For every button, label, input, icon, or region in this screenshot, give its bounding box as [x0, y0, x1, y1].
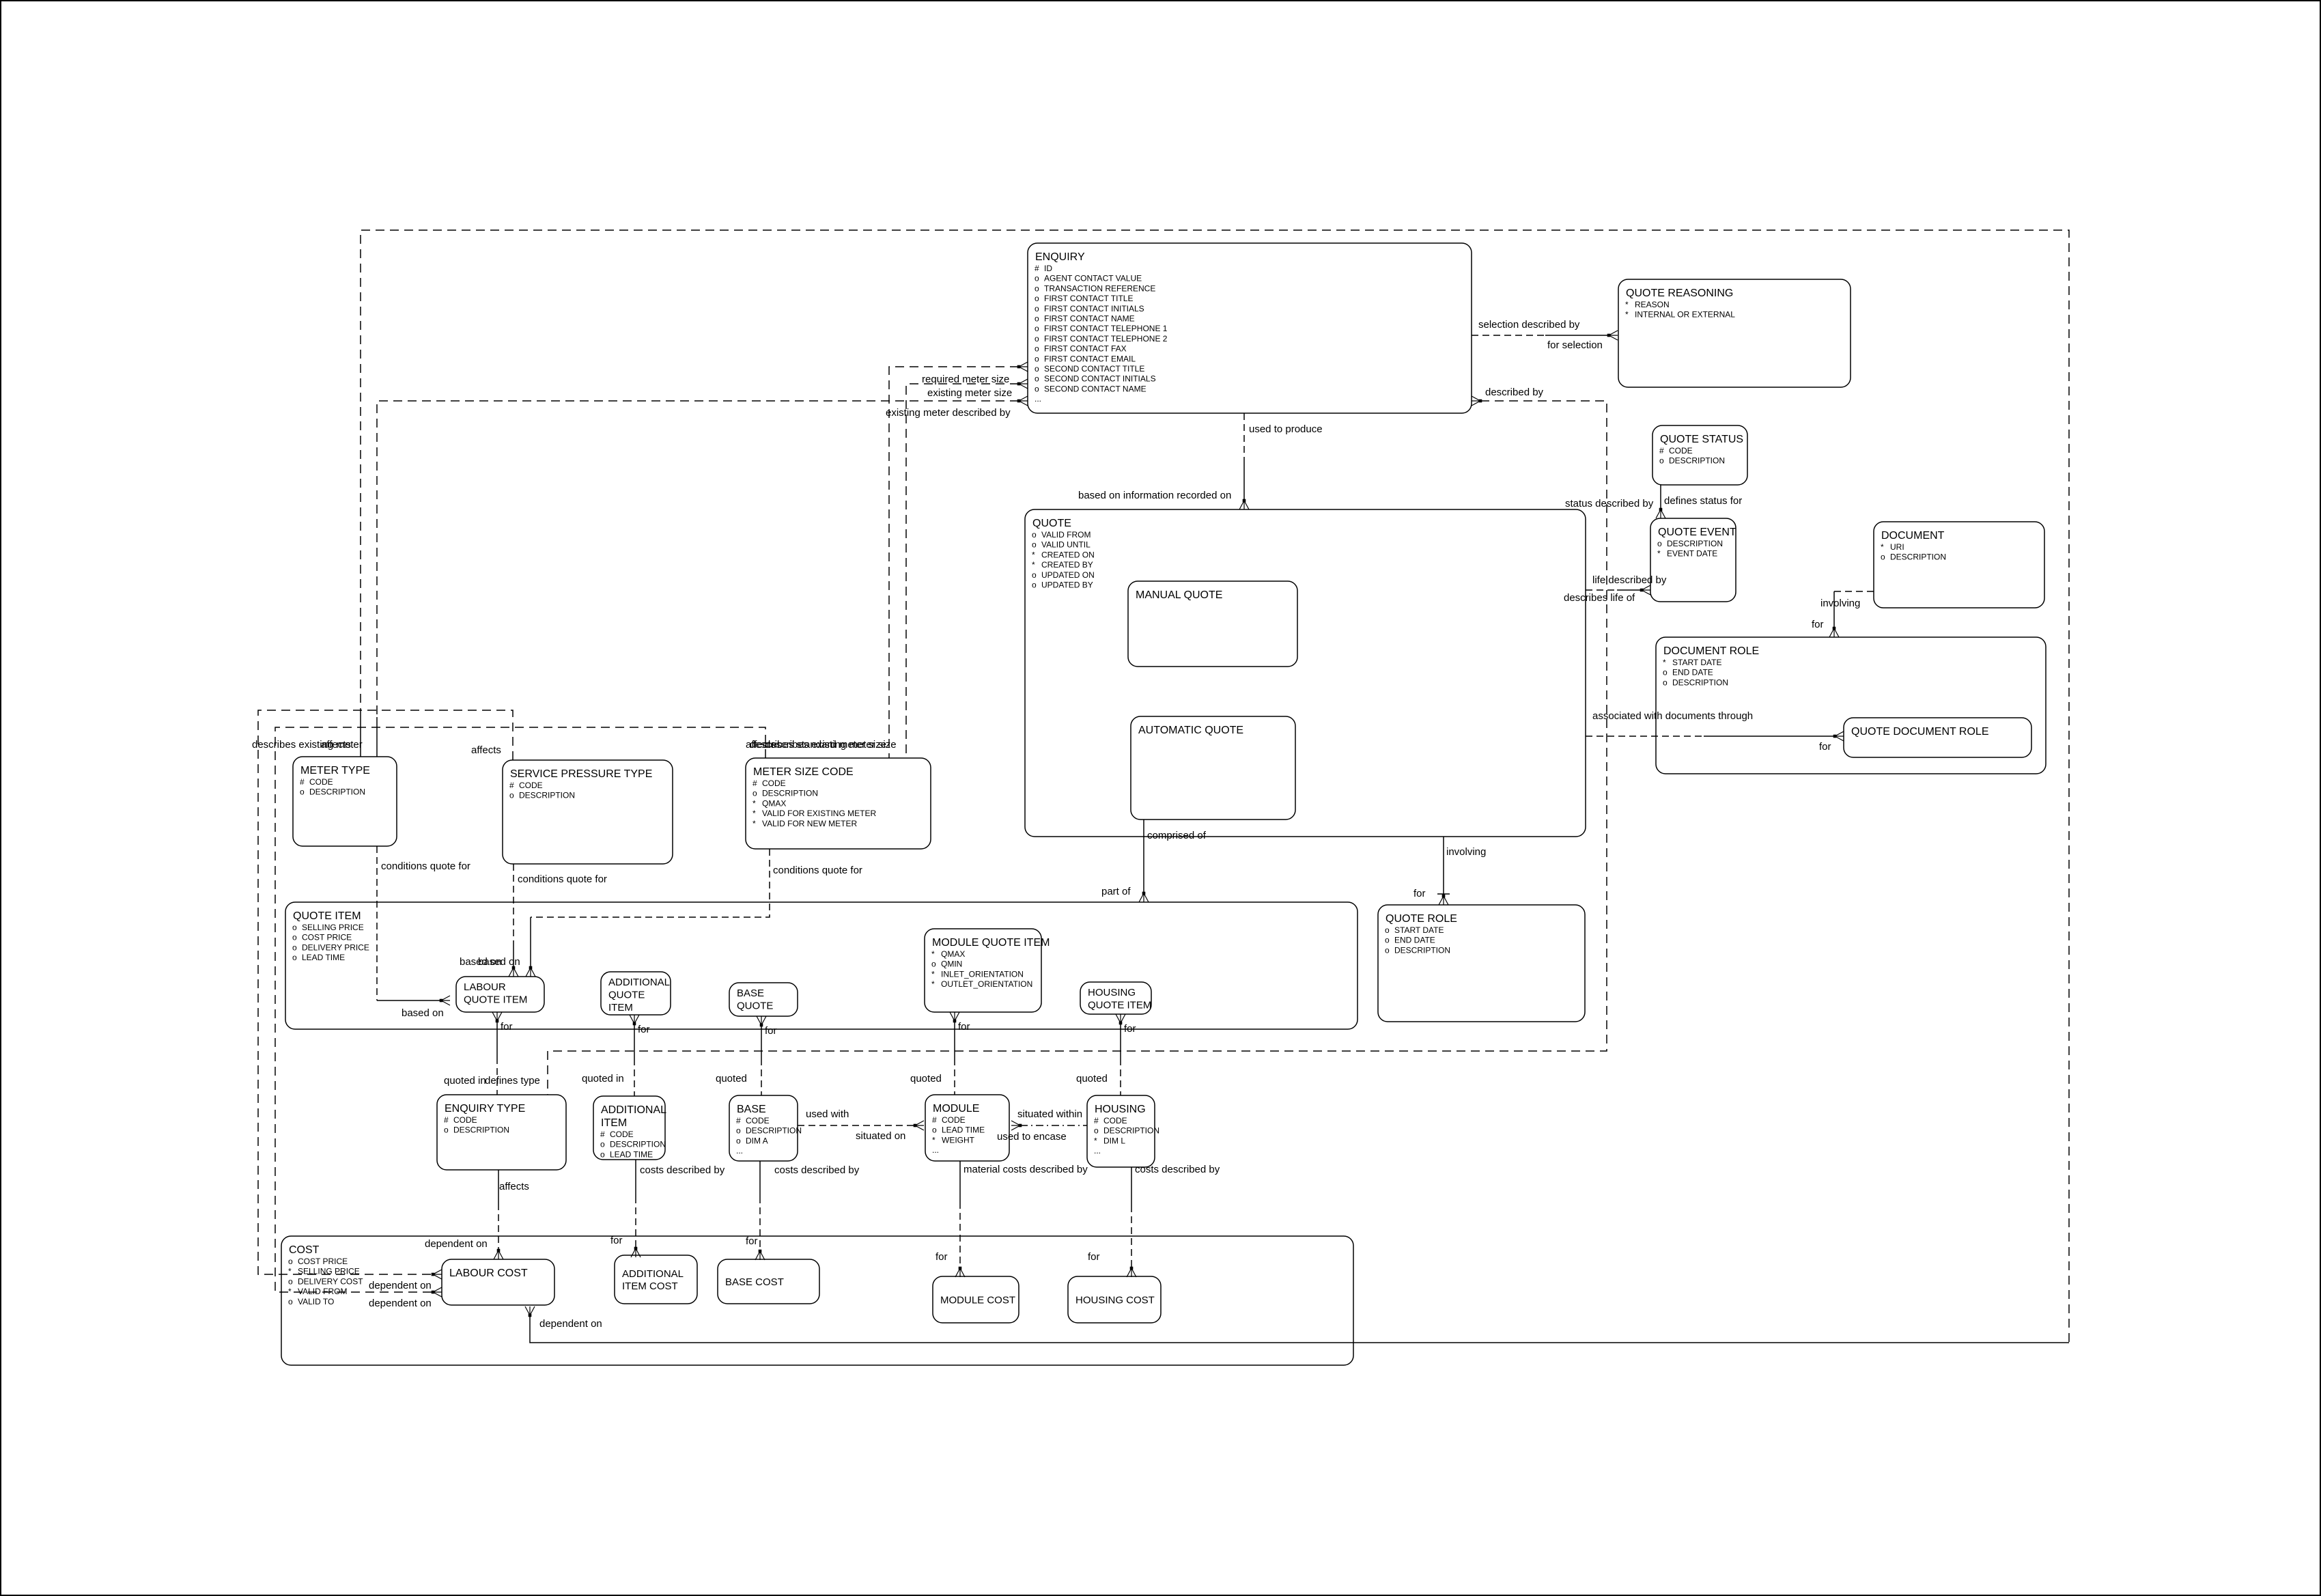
svg-text:DESCRIPTION: DESCRIPTION [762, 789, 818, 798]
svg-text:AGENT CONTACT VALUE: AGENT CONTACT VALUE [1044, 274, 1142, 283]
svg-text:ID: ID [1044, 264, 1052, 273]
svg-text:based on: based on [402, 1007, 444, 1019]
svg-text:*: * [1657, 549, 1661, 559]
svg-text:FIRST CONTACT TELEPHONE 2: FIRST CONTACT TELEPHONE 2 [1044, 334, 1168, 344]
svg-text:o: o [1035, 364, 1039, 374]
svg-text:o: o [1032, 570, 1037, 580]
svg-text:o: o [1035, 384, 1039, 393]
svg-text:TRANSACTION REFERENCE: TRANSACTION REFERENCE [1044, 283, 1155, 293]
svg-text:...: ... [736, 1146, 743, 1156]
svg-text:describes existing meter size: describes existing meter size [765, 739, 897, 751]
svg-text:SECOND CONTACT TITLE: SECOND CONTACT TITLE [1044, 364, 1144, 374]
svg-text:DIM L: DIM L [1103, 1136, 1125, 1145]
svg-text:*: * [1032, 560, 1035, 570]
svg-text:DOCUMENT: DOCUMENT [1881, 530, 1945, 542]
svg-text:CREATED BY: CREATED BY [1041, 560, 1093, 570]
svg-text:involving: involving [1446, 846, 1486, 858]
svg-text:*: * [1625, 310, 1629, 320]
svg-text:QMAX: QMAX [941, 949, 965, 959]
svg-text:#: # [300, 777, 305, 787]
svg-text:for: for [638, 1024, 650, 1035]
svg-text:*: * [1625, 300, 1629, 309]
svg-text:SECOND CONTACT INITIALS: SECOND CONTACT INITIALS [1044, 374, 1156, 384]
svg-text:LEAD TIME: LEAD TIME [610, 1149, 653, 1159]
svg-text:o: o [1035, 324, 1039, 333]
svg-text:o: o [1035, 274, 1039, 283]
svg-text:ADDITIONAL: ADDITIONAL [601, 1104, 666, 1116]
svg-text:used to produce: used to produce [1249, 423, 1323, 435]
svg-text:*: * [932, 1135, 936, 1145]
svg-text:CODE: CODE [746, 1116, 770, 1125]
svg-text:LEAD TIME: LEAD TIME [942, 1125, 985, 1135]
svg-text:o: o [1385, 945, 1390, 955]
svg-text:o: o [300, 787, 305, 797]
svg-text:o: o [1032, 580, 1037, 590]
svg-text:used to encase: used to encase [997, 1131, 1067, 1143]
svg-text:CREATED ON: CREATED ON [1041, 550, 1095, 559]
svg-text:dependent on: dependent on [425, 1238, 488, 1250]
svg-text:QUOTE ITEM: QUOTE ITEM [1088, 1000, 1151, 1011]
svg-text:conditions quote for: conditions quote for [773, 865, 862, 876]
svg-text:involving: involving [1820, 598, 1860, 609]
svg-text:FIRST CONTACT TELEPHONE 1: FIRST CONTACT TELEPHONE 1 [1044, 324, 1168, 333]
svg-text:for selection: for selection [1547, 339, 1603, 351]
svg-text:END DATE: END DATE [1672, 668, 1713, 677]
svg-text:o: o [288, 1276, 293, 1286]
svg-text:affects: affects [499, 1181, 529, 1192]
svg-text:o: o [509, 791, 514, 800]
svg-text:VALID FOR EXISTING METER: VALID FOR EXISTING METER [762, 809, 876, 818]
svg-text:o: o [1035, 374, 1039, 384]
svg-text:dependent on: dependent on [369, 1280, 432, 1291]
svg-text:describes life of: describes life of [1564, 592, 1635, 604]
svg-text:DESCRIPTION: DESCRIPTION [1394, 945, 1450, 955]
svg-text:dependent on: dependent on [539, 1318, 602, 1330]
svg-text:o: o [292, 942, 297, 952]
svg-text:#: # [600, 1130, 605, 1139]
svg-text:existing meter size: existing meter size [927, 387, 1012, 399]
svg-text:CODE: CODE [309, 777, 333, 787]
svg-text:BASE COST: BASE COST [725, 1276, 784, 1288]
svg-text:for: for [610, 1235, 623, 1246]
svg-text:o: o [1657, 539, 1662, 548]
svg-text:MODULE COST: MODULE COST [940, 1295, 1015, 1306]
svg-text:*: * [752, 819, 756, 828]
svg-text:o: o [288, 1297, 293, 1306]
svg-text:CODE: CODE [942, 1115, 966, 1125]
svg-text:affects: affects [471, 744, 501, 756]
svg-text:CODE: CODE [1103, 1116, 1127, 1125]
svg-text:used with: used with [806, 1108, 849, 1120]
svg-text:FIRST CONTACT NAME: FIRST CONTACT NAME [1044, 314, 1135, 324]
svg-text:FIRST CONTACT FAX: FIRST CONTACT FAX [1044, 344, 1127, 354]
svg-text:WEIGHT: WEIGHT [942, 1135, 975, 1145]
svg-text:UPDATED BY: UPDATED BY [1041, 580, 1093, 590]
svg-text:CODE: CODE [762, 779, 786, 788]
svg-text:costs described by: costs described by [1135, 1164, 1220, 1175]
svg-text:for: for [765, 1025, 777, 1037]
svg-text:COST PRICE: COST PRICE [298, 1257, 348, 1266]
svg-text:situated within: situated within [1017, 1108, 1082, 1120]
svg-text:comprised of: comprised of [1147, 830, 1207, 841]
svg-text:DESCRIPTION: DESCRIPTION [1890, 552, 1946, 562]
svg-text:o: o [736, 1136, 741, 1145]
svg-text:status described by: status described by [1565, 498, 1654, 509]
svg-text:HOUSING: HOUSING [1088, 987, 1136, 998]
svg-text:VALID UNTIL: VALID UNTIL [1041, 540, 1091, 550]
svg-text:DESCRIPTION: DESCRIPTION [453, 1125, 509, 1135]
svg-text:ADDITIONAL: ADDITIONAL [608, 977, 670, 988]
svg-text:*: * [752, 809, 756, 818]
svg-text:EVENT DATE: EVENT DATE [1667, 549, 1717, 559]
svg-text:ITEM: ITEM [608, 1002, 633, 1013]
svg-text:life described by: life described by [1592, 574, 1667, 586]
svg-text:METER TYPE: METER TYPE [300, 765, 370, 776]
svg-text:quoted in: quoted in [444, 1075, 486, 1087]
svg-text:BASE: BASE [737, 988, 764, 999]
svg-text:HOUSING: HOUSING [1095, 1104, 1146, 1115]
svg-text:ENQUIRY: ENQUIRY [1035, 251, 1085, 263]
svg-text:defines type: defines type [485, 1075, 540, 1087]
svg-text:quoted: quoted [716, 1073, 747, 1084]
svg-text:DESCRIPTION: DESCRIPTION [1667, 539, 1723, 548]
svg-text:AUTOMATIC QUOTE: AUTOMATIC QUOTE [1138, 725, 1243, 736]
svg-text:DESCRIPTION: DESCRIPTION [746, 1126, 802, 1136]
svg-text:DOCUMENT ROLE: DOCUMENT ROLE [1663, 645, 1759, 657]
svg-text:CODE: CODE [610, 1130, 634, 1139]
svg-text:QUOTE ITEM: QUOTE ITEM [464, 994, 527, 1006]
svg-text:FIRST CONTACT INITIALS: FIRST CONTACT INITIALS [1044, 304, 1144, 313]
svg-text:based on: based on [478, 956, 520, 968]
svg-text:for: for [1812, 619, 1824, 630]
svg-text:dependent on: dependent on [369, 1298, 432, 1309]
svg-text:o: o [931, 960, 936, 969]
svg-text:*: * [1032, 550, 1035, 559]
svg-text:SELLING PRICE: SELLING PRICE [302, 923, 364, 932]
svg-text:DESCRIPTION: DESCRIPTION [1103, 1126, 1159, 1136]
svg-text:o: o [288, 1257, 293, 1266]
svg-text:o: o [1035, 344, 1039, 354]
svg-text:DESCRIPTION: DESCRIPTION [519, 791, 575, 800]
svg-text:END DATE: END DATE [1394, 936, 1435, 945]
svg-text:ENQUIRY TYPE: ENQUIRY TYPE [445, 1103, 525, 1115]
svg-text:for: for [1819, 741, 1831, 753]
svg-text:o: o [600, 1149, 605, 1159]
svg-text:DESCRIPTION: DESCRIPTION [1669, 456, 1725, 466]
svg-text:CODE: CODE [453, 1115, 477, 1125]
svg-text:*: * [931, 969, 935, 979]
svg-text:METER SIZE CODE: METER SIZE CODE [753, 766, 854, 778]
svg-text:for: for [936, 1251, 948, 1263]
svg-text:DESCRIPTION: DESCRIPTION [309, 787, 365, 797]
svg-text:*: * [931, 979, 935, 989]
svg-text:...: ... [1035, 394, 1041, 404]
svg-text:o: o [1663, 677, 1668, 687]
svg-text:o: o [292, 933, 297, 942]
svg-text:#: # [1035, 264, 1039, 273]
svg-text:o: o [752, 789, 757, 798]
svg-text:FIRST CONTACT EMAIL: FIRST CONTACT EMAIL [1044, 354, 1136, 363]
svg-text:#: # [509, 781, 514, 790]
svg-text:described by: described by [1485, 387, 1544, 398]
svg-text:HOUSING COST: HOUSING COST [1075, 1295, 1155, 1306]
svg-text:part of: part of [1101, 886, 1131, 897]
svg-text:o: o [1663, 668, 1668, 677]
svg-text:INTERNAL OR EXTERNAL: INTERNAL OR EXTERNAL [1635, 310, 1735, 320]
svg-text:associated with documents thro: associated with documents through [1592, 710, 1753, 722]
svg-text:for: for [501, 1021, 513, 1033]
svg-text:VALID TO: VALID TO [298, 1297, 334, 1306]
svg-text:SERVICE PRESSURE TYPE: SERVICE PRESSURE TYPE [510, 768, 652, 780]
svg-text:DIM A: DIM A [746, 1136, 768, 1145]
svg-text:#: # [444, 1115, 449, 1125]
svg-text:QUOTE ROLE: QUOTE ROLE [1385, 913, 1457, 925]
svg-text:QUOTE: QUOTE [737, 1000, 773, 1012]
svg-text:*: * [931, 949, 935, 959]
svg-text:START DATE: START DATE [1672, 658, 1721, 667]
svg-text:*: * [288, 1267, 292, 1276]
svg-text:selection described by: selection described by [1478, 319, 1580, 331]
svg-text:o: o [600, 1140, 605, 1149]
svg-text:ITEM COST: ITEM COST [622, 1280, 678, 1292]
svg-text:CODE: CODE [1669, 446, 1693, 456]
svg-text:quoted: quoted [1076, 1073, 1108, 1084]
svg-text:costs described by: costs described by [774, 1164, 860, 1176]
svg-text:o: o [1385, 936, 1390, 945]
svg-text:defines status for: defines status for [1664, 495, 1742, 507]
svg-text:DELIVERY COST: DELIVERY COST [298, 1276, 363, 1286]
svg-text:QUOTE EVENT: QUOTE EVENT [1658, 527, 1736, 538]
svg-text:o: o [1035, 334, 1039, 344]
svg-text:ADDITIONAL: ADDITIONAL [622, 1268, 684, 1280]
svg-text:VALID FOR NEW METER: VALID FOR NEW METER [762, 819, 857, 828]
svg-text:DELIVERY PRICE: DELIVERY PRICE [302, 942, 369, 952]
svg-text:for: for [958, 1021, 970, 1033]
svg-text:*: * [1663, 658, 1666, 667]
svg-text:o: o [932, 1125, 937, 1135]
svg-text:*: * [1094, 1136, 1097, 1145]
svg-text:CODE: CODE [519, 781, 543, 790]
svg-text:LABOUR COST: LABOUR COST [449, 1268, 528, 1279]
svg-text:#: # [736, 1116, 741, 1125]
svg-text:existing meter described by: existing meter described by [886, 407, 1011, 419]
svg-text:INLET_ORIENTATION: INLET_ORIENTATION [941, 969, 1024, 979]
svg-text:VALID FROM: VALID FROM [1041, 530, 1091, 540]
svg-text:QUOTE DOCUMENT ROLE: QUOTE DOCUMENT ROLE [1851, 726, 1989, 738]
svg-text:OUTLET_ORIENTATION: OUTLET_ORIENTATION [941, 979, 1032, 989]
svg-text:o: o [292, 953, 297, 962]
svg-text:MODULE: MODULE [933, 1103, 979, 1115]
svg-text:o: o [1385, 925, 1390, 935]
svg-text:o: o [1035, 314, 1039, 324]
svg-text:situated on: situated on [856, 1130, 905, 1142]
svg-text:o: o [1032, 530, 1037, 540]
svg-text:MODULE QUOTE ITEM: MODULE QUOTE ITEM [932, 937, 1050, 949]
svg-text:...: ... [1094, 1146, 1101, 1156]
svg-text:QMIN: QMIN [941, 960, 962, 969]
svg-text:BASE: BASE [737, 1104, 766, 1115]
svg-text:conditions quote for: conditions quote for [381, 860, 470, 872]
svg-text:QUOTE STATUS: QUOTE STATUS [1660, 434, 1743, 445]
svg-text:#: # [932, 1115, 937, 1125]
svg-text:o: o [1035, 294, 1039, 303]
svg-text:#: # [752, 779, 757, 788]
svg-text:o: o [1659, 456, 1664, 466]
svg-text:affects: affects [746, 739, 776, 751]
svg-text:material costs described by: material costs described by [963, 1164, 1088, 1175]
svg-text:LEAD TIME: LEAD TIME [302, 953, 345, 962]
svg-text:*: * [752, 798, 756, 808]
svg-text:ITEM: ITEM [601, 1117, 627, 1129]
svg-text:VALID FROM: VALID FROM [298, 1287, 347, 1296]
svg-text:LABOUR: LABOUR [464, 981, 506, 993]
svg-text:DESCRIPTION: DESCRIPTION [610, 1140, 666, 1149]
svg-text:o: o [1881, 552, 1885, 562]
svg-text:quoted: quoted [910, 1073, 942, 1084]
svg-text:for: for [1124, 1023, 1136, 1035]
svg-text:#: # [1094, 1116, 1099, 1125]
svg-text:conditions quote for: conditions quote for [518, 873, 607, 885]
svg-text:o: o [292, 923, 297, 932]
svg-text:for: for [746, 1235, 758, 1247]
svg-text:o: o [1094, 1126, 1099, 1136]
svg-text:*: * [1881, 542, 1884, 552]
svg-text:UPDATED ON: UPDATED ON [1041, 570, 1095, 580]
svg-text:COST PRICE: COST PRICE [302, 933, 352, 942]
svg-text:QMAX: QMAX [762, 798, 786, 808]
svg-text:REASON: REASON [1635, 300, 1670, 309]
svg-text:costs described by: costs described by [640, 1164, 725, 1176]
svg-text:MANUAL QUOTE: MANUAL QUOTE [1136, 589, 1222, 601]
svg-text:for: for [1088, 1251, 1100, 1263]
svg-text:QUOTE REASONING: QUOTE REASONING [1626, 288, 1733, 299]
svg-text:...: ... [932, 1145, 939, 1155]
svg-text:based on information recorded: based on information recorded on [1078, 490, 1231, 501]
svg-text:SECOND CONTACT NAME: SECOND CONTACT NAME [1044, 384, 1147, 393]
svg-text:FIRST CONTACT TITLE: FIRST CONTACT TITLE [1044, 294, 1133, 303]
svg-text:o: o [736, 1126, 741, 1136]
svg-text:#: # [1659, 446, 1664, 456]
svg-text:QUOTE: QUOTE [1032, 518, 1071, 529]
svg-text:quoted in: quoted in [582, 1073, 624, 1084]
svg-text:o: o [1035, 304, 1039, 313]
svg-text:QUOTE: QUOTE [608, 990, 645, 1001]
svg-text:o: o [1035, 354, 1039, 363]
svg-text:URI: URI [1890, 542, 1904, 552]
svg-text:START DATE: START DATE [1394, 925, 1444, 935]
svg-text:o: o [444, 1125, 449, 1135]
svg-text:*: * [288, 1287, 292, 1296]
svg-text:affects: affects [321, 739, 351, 751]
svg-text:QUOTE ITEM: QUOTE ITEM [293, 910, 361, 922]
svg-text:o: o [1032, 540, 1037, 550]
svg-text:for: for [1413, 888, 1426, 899]
svg-text:DESCRIPTION: DESCRIPTION [1672, 677, 1728, 687]
svg-text:o: o [1035, 283, 1039, 293]
svg-text:COST: COST [289, 1244, 320, 1256]
